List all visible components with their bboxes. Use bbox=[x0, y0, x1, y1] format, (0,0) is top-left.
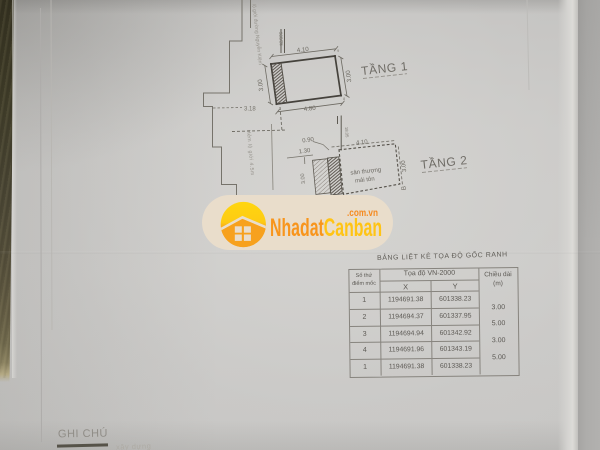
svg-text:3.00: 3.00 bbox=[300, 173, 307, 184]
svg-text:3.00: 3.00 bbox=[345, 69, 353, 82]
svg-text:3.00: 3.00 bbox=[257, 78, 265, 91]
svg-text:TẦNG 2: TẦNG 2 bbox=[420, 152, 468, 172]
svg-text:3.18: 3.18 bbox=[244, 107, 256, 113]
svg-text:TẦNG 1: TẦNG 1 bbox=[360, 58, 408, 78]
svg-text:18.05: 18.05 bbox=[344, 127, 350, 138]
svg-text:mái tôn: mái tôn bbox=[355, 176, 375, 184]
svg-text:lộ giới đường Nguyễn Kiệm: lộ giới đường Nguyễn Kiệm bbox=[251, 3, 264, 65]
svg-text:4.80: 4.80 bbox=[303, 105, 316, 113]
svg-text:8: 8 bbox=[343, 96, 346, 101]
svg-text:4.10: 4.10 bbox=[296, 46, 309, 54]
svg-text:sân thượng: sân thượng bbox=[350, 167, 381, 176]
svg-text:0.90: 0.90 bbox=[302, 137, 315, 145]
svg-text:360/25: 360/25 bbox=[278, 32, 284, 47]
svg-text:4.10: 4.10 bbox=[356, 139, 369, 146]
svg-text:3.00: 3.00 bbox=[401, 159, 408, 172]
svg-text:9: 9 bbox=[337, 48, 340, 53]
svg-text:B: B bbox=[401, 185, 408, 190]
svg-text:Hẻm lộ giới 4.5m: Hẻm lộ giới 4.5m bbox=[245, 130, 255, 176]
svg-text:1.30: 1.30 bbox=[298, 148, 311, 156]
